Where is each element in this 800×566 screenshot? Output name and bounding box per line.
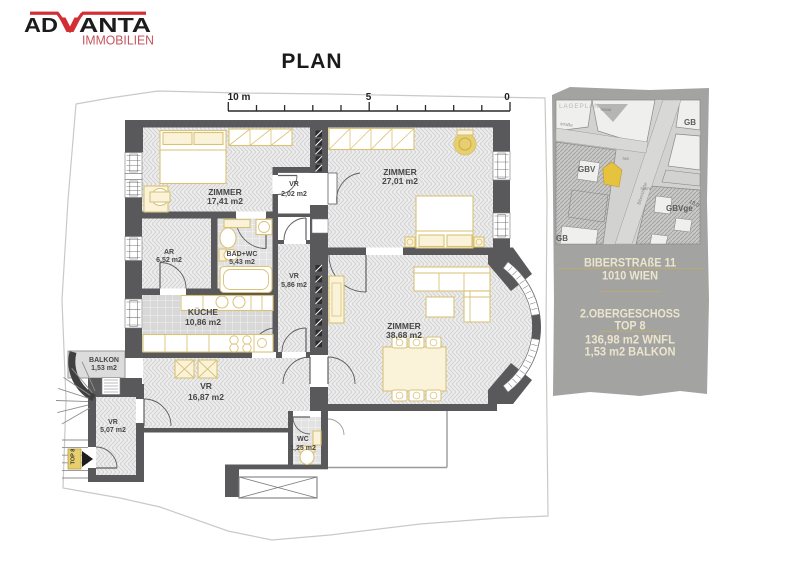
svg-text:5,86 m2: 5,86 m2 <box>281 282 307 289</box>
svg-text:2,02 m2: 2,02 m2 <box>281 191 307 198</box>
svg-text:17,41 m2: 17,41 m2 <box>207 196 243 206</box>
svg-text:GBVge: GBVge <box>666 204 693 213</box>
svg-text:VR: VR <box>200 381 212 391</box>
svg-text:1,25 m2: 1,25 m2 <box>290 445 316 452</box>
svg-text:1,53 m2: 1,53 m2 <box>91 365 117 372</box>
svg-text:VR: VR <box>108 419 118 426</box>
svg-text:10,86 m2: 10,86 m2 <box>185 317 221 327</box>
svg-text:TOP 8: TOP 8 <box>615 319 646 333</box>
svg-text:PLAN: PLAN <box>281 50 342 73</box>
svg-text:BALKON: BALKON <box>89 357 119 364</box>
svg-text:GB: GB <box>684 118 696 127</box>
svg-text:769: 769 <box>622 156 629 161</box>
svg-text:0: 0 <box>504 92 510 103</box>
svg-text:VR: VR <box>289 181 299 188</box>
svg-text:AR: AR <box>164 249 174 256</box>
svg-text:KÜCHE: KÜCHE <box>188 307 219 317</box>
svg-text:76946: 76946 <box>600 107 612 112</box>
svg-text:GBV: GBV <box>578 165 596 174</box>
svg-text:16,87 m2: 16,87 m2 <box>188 392 224 402</box>
svg-text:1,53 m2 BALKON: 1,53 m2 BALKON <box>585 345 676 359</box>
svg-text:5: 5 <box>366 92 372 103</box>
svg-text:IMMOBILIEN: IMMOBILIEN <box>82 34 154 48</box>
svg-text:10 m: 10 m <box>228 92 251 103</box>
svg-text:LAGEPLAN: LAGEPLAN <box>559 103 600 110</box>
svg-text:TOP 8: TOP 8 <box>71 449 77 465</box>
svg-text:6,52 m2: 6,52 m2 <box>156 257 182 264</box>
svg-text:BIBERSTRAßE 11: BIBERSTRAßE 11 <box>584 256 676 270</box>
svg-text:WC: WC <box>297 436 309 443</box>
svg-text:GB: GB <box>556 234 568 243</box>
svg-text:38,68 m2: 38,68 m2 <box>386 330 422 340</box>
svg-text:VR: VR <box>289 273 299 280</box>
svg-text:5,07 m2: 5,07 m2 <box>100 427 126 434</box>
svg-text:1010 WIEN: 1010 WIEN <box>602 269 658 283</box>
svg-text:5,43 m2: 5,43 m2 <box>229 259 255 266</box>
svg-text:AD: AD <box>24 15 58 37</box>
svg-text:27,01 m2: 27,01 m2 <box>382 176 418 186</box>
svg-text:BAD+WC: BAD+WC <box>227 251 258 258</box>
